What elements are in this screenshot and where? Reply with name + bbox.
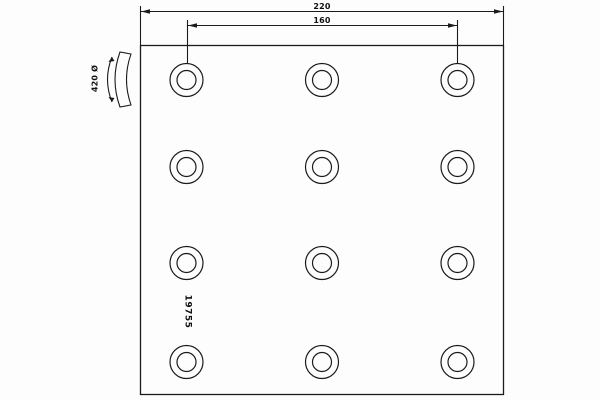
curvature-arc (108, 57, 113, 102)
rivet-hole-outer (441, 64, 474, 97)
rivet-hole-outer (441, 151, 474, 184)
arrowhead-right-icon (494, 9, 503, 13)
rivet-holes (170, 64, 474, 379)
rivet-hole-outer (170, 64, 203, 97)
arrowhead-left-icon (188, 23, 197, 27)
part-number-label: 19755 (183, 290, 192, 334)
dimension-label-overall-width: 220 (302, 2, 342, 11)
brake-lining-outline (141, 46, 504, 395)
rivet-hole-inner (448, 353, 467, 372)
drawing-linework (0, 0, 600, 400)
rivet-hole-outer (441, 247, 474, 280)
rivet-hole-inner (448, 158, 467, 177)
rivet-hole-outer (306, 346, 339, 379)
rivet-hole-inner (177, 353, 196, 372)
rivet-hole-inner (177, 254, 196, 273)
rivet-hole-inner (448, 71, 467, 90)
rivet-hole-outer (306, 64, 339, 97)
curvature-diameter-label: 420 Ø (91, 62, 100, 96)
rivet-hole-outer (170, 151, 203, 184)
rivet-hole-inner (177, 158, 196, 177)
rivet-hole-inner (313, 71, 332, 90)
dimension-extension-lines (141, 6, 504, 64)
curvature-arrow-top-icon (109, 57, 115, 62)
rivet-hole-outer (441, 346, 474, 379)
rivet-hole-outer (306, 247, 339, 280)
curvature-symbol (108, 52, 132, 107)
rivet-hole-outer (306, 151, 339, 184)
curvature-arrow-bottom-icon (109, 97, 115, 102)
rivet-hole-inner (313, 254, 332, 273)
rivet-hole-outer (170, 247, 203, 280)
rivet-hole-inner (313, 158, 332, 177)
technical-drawing-canvas: 220 160 19755 420 Ø (0, 0, 600, 400)
dimension-label-hole-spacing: 160 (302, 16, 342, 25)
rivet-hole-inner (313, 353, 332, 372)
rivet-hole-inner (448, 254, 467, 273)
arrowhead-left-icon (141, 9, 150, 13)
lining-section-band (115, 52, 131, 107)
rivet-hole-outer (170, 346, 203, 379)
rivet-hole-inner (177, 71, 196, 90)
arrowhead-right-icon (448, 23, 457, 27)
